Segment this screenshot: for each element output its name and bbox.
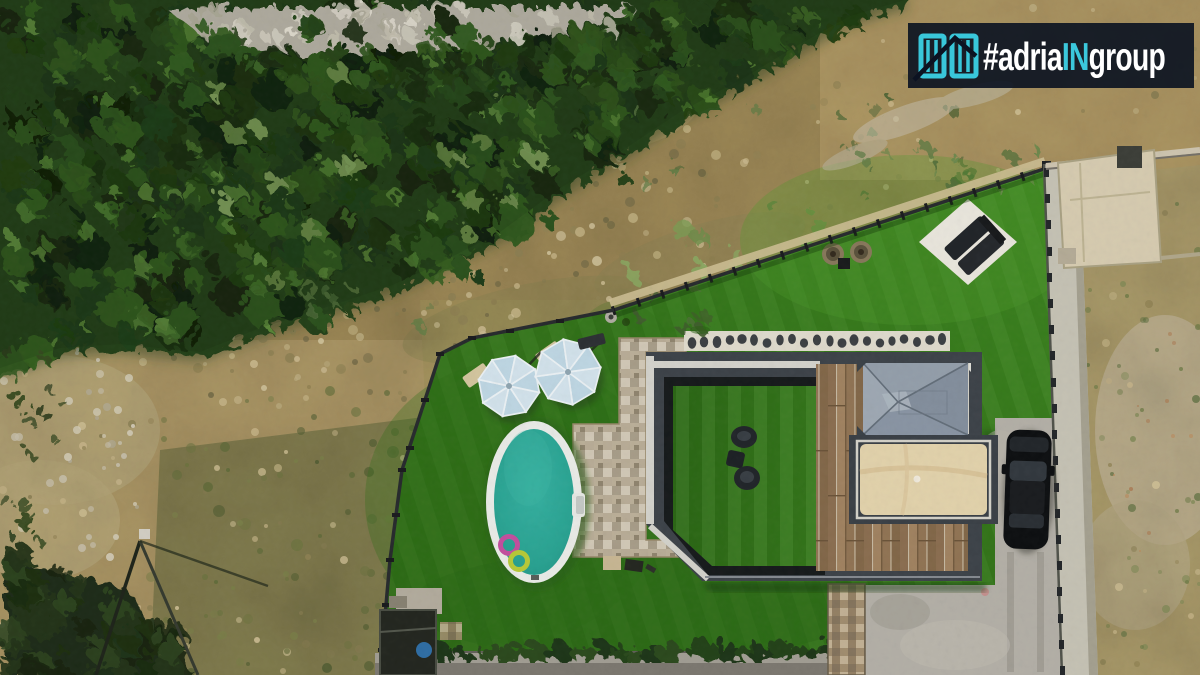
svg-text:#adriaINgroup: #adriaINgroup — [983, 36, 1165, 79]
